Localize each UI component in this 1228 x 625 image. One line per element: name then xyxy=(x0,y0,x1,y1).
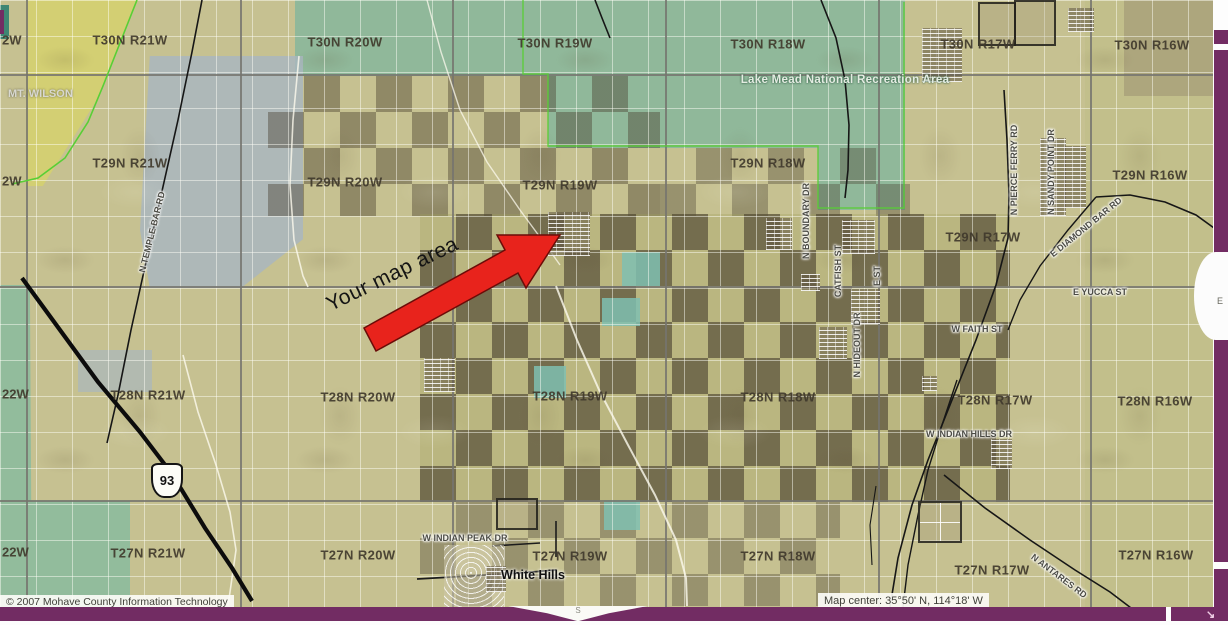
road-label: N PIERCE FERRY RD xyxy=(1009,125,1019,216)
township-label: T28N R21W xyxy=(110,388,185,403)
edge-range-label: 22W xyxy=(2,545,29,560)
subdivision-marker xyxy=(766,218,792,250)
edge-range-label: 2W xyxy=(2,33,22,48)
subdivision-marker xyxy=(922,376,937,391)
subdivision-marker xyxy=(1064,146,1086,208)
frame-right-upper xyxy=(1214,30,1228,254)
compass-south-label: S xyxy=(575,606,580,615)
frame-right-tick xyxy=(1214,44,1228,50)
wash xyxy=(183,355,236,606)
township-label: T29N R18W xyxy=(730,156,805,171)
road-label: N BOUNDARY DR xyxy=(801,183,811,259)
township-label: T28N R18W xyxy=(740,390,815,405)
edge-range-label: 2W xyxy=(2,174,22,189)
place-label-mt-wilson: MT. WILSON xyxy=(8,88,73,100)
road-top-right xyxy=(821,0,849,198)
township-label: T30N R18W xyxy=(730,37,805,52)
subdivision-marker xyxy=(991,439,1012,469)
road-local xyxy=(870,486,876,565)
township-label: T27N R21W xyxy=(110,546,185,561)
road-top-center xyxy=(595,0,610,38)
subdivision-marker xyxy=(496,498,538,530)
township-label: T29N R17W xyxy=(945,230,1020,245)
township-label: T29N R20W xyxy=(307,175,382,190)
road-local xyxy=(903,380,957,607)
road-label: CATFISH ST xyxy=(833,245,843,297)
township-label: T30N R17W xyxy=(940,37,1015,52)
road-antares xyxy=(944,475,1135,611)
subdivision-marker xyxy=(1014,0,1056,46)
frame-right-tick xyxy=(1214,562,1228,569)
township-label: T30N R19W xyxy=(517,36,592,51)
township-label: T28N R16W xyxy=(1117,394,1192,409)
place-label-nra: Lake Mead National Recreation Area xyxy=(741,74,950,86)
subdivision-marker xyxy=(918,501,962,543)
edge-range-label: 22W xyxy=(2,387,29,402)
place-label-white-hills: White Hills xyxy=(501,568,565,582)
township-label: T27N R19W xyxy=(532,549,607,564)
subdivision-marker xyxy=(1068,8,1094,32)
subdivision-marker xyxy=(424,358,455,392)
wash xyxy=(290,56,308,287)
township-label: T28N R19W xyxy=(532,389,607,404)
road-label: N HIDEOUT DR xyxy=(852,313,862,378)
township-label: T27N R18W xyxy=(740,549,815,564)
subdivision-marker xyxy=(801,274,820,291)
map-canvas[interactable]: T30N R21W T30N R20W T30N R19W T30N R18W … xyxy=(0,0,1228,625)
road-label: W INDIAN HILLS DR xyxy=(926,429,1012,439)
subdivision-marker xyxy=(842,220,875,254)
frame-bottom-tick xyxy=(1166,607,1171,621)
township-label: T28N R20W xyxy=(320,390,395,405)
township-label: T27N R16W xyxy=(1118,548,1193,563)
us93-number: 93 xyxy=(160,473,174,488)
frame-top-left-sliver xyxy=(0,10,4,34)
road-label: W FAITH ST xyxy=(952,324,1003,334)
township-label: T29N R21W xyxy=(92,156,167,171)
township-label: T30N R16W xyxy=(1114,38,1189,53)
township-label: T27N R17W xyxy=(954,563,1029,578)
road-diamond-bar-sw xyxy=(1008,197,1096,330)
road-label: E ST xyxy=(872,266,882,286)
township-label: T28N R17W xyxy=(957,393,1032,408)
township-label: T29N R19W xyxy=(522,178,597,193)
resize-handle-icon[interactable]: ↘ xyxy=(1206,608,1215,621)
road-label: E YUCCA ST xyxy=(1073,287,1127,297)
township-label: T30N R21W xyxy=(92,33,167,48)
us93-highway-shield: 93 xyxy=(151,463,183,498)
road-label: N SANDY POINT DR xyxy=(1046,129,1056,215)
compass-east-label: E xyxy=(1217,296,1223,306)
roads-layer xyxy=(0,0,1228,625)
red-arrow-shape xyxy=(364,235,560,351)
township-label: T30N R20W xyxy=(307,35,382,50)
road-label: W INDIAN PEAK DR xyxy=(423,533,508,543)
frame-bottom-strip xyxy=(0,621,1228,625)
township-label: T27N R20W xyxy=(320,548,395,563)
township-label: T29N R16W xyxy=(1112,168,1187,183)
subdivision-marker xyxy=(819,327,847,359)
